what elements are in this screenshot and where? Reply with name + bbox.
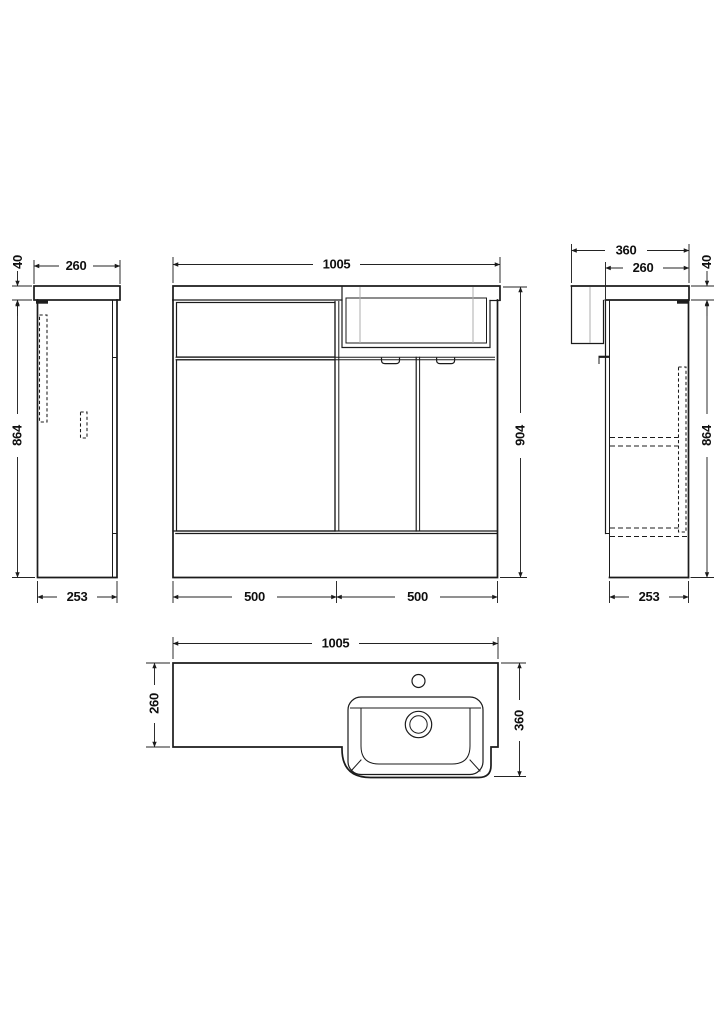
drawing-svg: 40 260 864 253	[0, 0, 724, 1024]
hanging-rail-dashed	[679, 367, 687, 532]
door-handle-profile	[599, 357, 610, 364]
drain-inner-circle	[410, 716, 427, 733]
dim-label-904-front: 904	[513, 424, 528, 446]
left-side-view: 40 260 864 253	[10, 255, 121, 604]
wall-bracket	[677, 300, 689, 304]
plan-view: 1005 260 360	[146, 636, 527, 778]
basin-front-inner	[346, 298, 487, 343]
bowl-corner-chamfer-left	[351, 760, 361, 771]
bowl-corner-chamfer-right	[470, 760, 480, 771]
wall-bracket	[36, 300, 48, 304]
hanging-rail-dashed	[40, 315, 48, 422]
basin-front-outline	[342, 287, 490, 348]
basin-outer-rim	[348, 697, 483, 775]
dim-label-500-left: 500	[244, 589, 265, 604]
dim-label-260-right: 260	[633, 260, 654, 275]
dim-label-1005-front: 1005	[323, 257, 351, 272]
basin-front	[342, 287, 490, 348]
dim-left-body-height: 864	[10, 301, 36, 578]
dim-label-260-plan: 260	[147, 693, 162, 714]
dim-right-top-thickness: 40	[691, 255, 714, 316]
dim-left-top-thickness: 40	[10, 255, 32, 316]
dim-plan-basin-depth: 360	[494, 663, 527, 777]
fixing-block-dashed	[81, 412, 88, 438]
left-end-panel	[177, 360, 336, 531]
dim-label-253-left: 253	[67, 589, 88, 604]
tap-hole	[412, 675, 425, 688]
door-handle-recess-left	[382, 358, 400, 363]
dim-front-overall-width: 1005	[173, 257, 500, 284]
dim-right-body-height: 864	[691, 301, 715, 578]
dim-right-overall-depth: 360	[572, 243, 690, 284]
dim-plan-overall-width: 1005	[173, 636, 498, 660]
dim-label-864-right: 864	[699, 424, 714, 446]
dim-front-overall-height: 904	[500, 287, 528, 578]
right-side-view: 360 260 40 864 253	[572, 243, 715, 605]
dim-label-253-right: 253	[639, 589, 660, 604]
dim-label-360-plan: 360	[512, 710, 527, 731]
dim-right-base-depth: 253	[610, 581, 689, 604]
dim-left-top-depth: 260	[34, 258, 120, 284]
drain-outer-circle	[405, 711, 431, 737]
dim-left-base-depth: 253	[38, 581, 118, 604]
dim-label-500-right: 500	[407, 589, 428, 604]
front-view: 1005 904 500 500	[173, 257, 528, 605]
basin-plan	[348, 675, 483, 775]
dim-label-360-right: 360	[616, 243, 637, 258]
dim-label-260-left: 260	[66, 258, 87, 273]
worktop-plan-outline	[173, 663, 498, 778]
worktop-section	[34, 286, 120, 300]
dim-label-864-left: 864	[10, 424, 25, 446]
upper-band-panel	[177, 303, 336, 358]
dim-right-top-depth: 260	[606, 260, 690, 299]
technical-drawing-canvas: 40 260 864 253	[0, 0, 724, 1024]
dim-label-1005-plan: 1005	[322, 636, 350, 651]
cabinet-side-outline	[38, 300, 118, 578]
worktop-section	[572, 286, 690, 300]
dim-plan-counter-depth: 260	[146, 663, 170, 747]
door-handle-recess-right	[437, 358, 455, 363]
dim-front-section-widths: 500 500	[173, 581, 498, 604]
dim-label-40-left: 40	[10, 255, 25, 269]
basin-bulge-profile	[572, 286, 604, 344]
dim-label-40-right: 40	[699, 255, 714, 269]
